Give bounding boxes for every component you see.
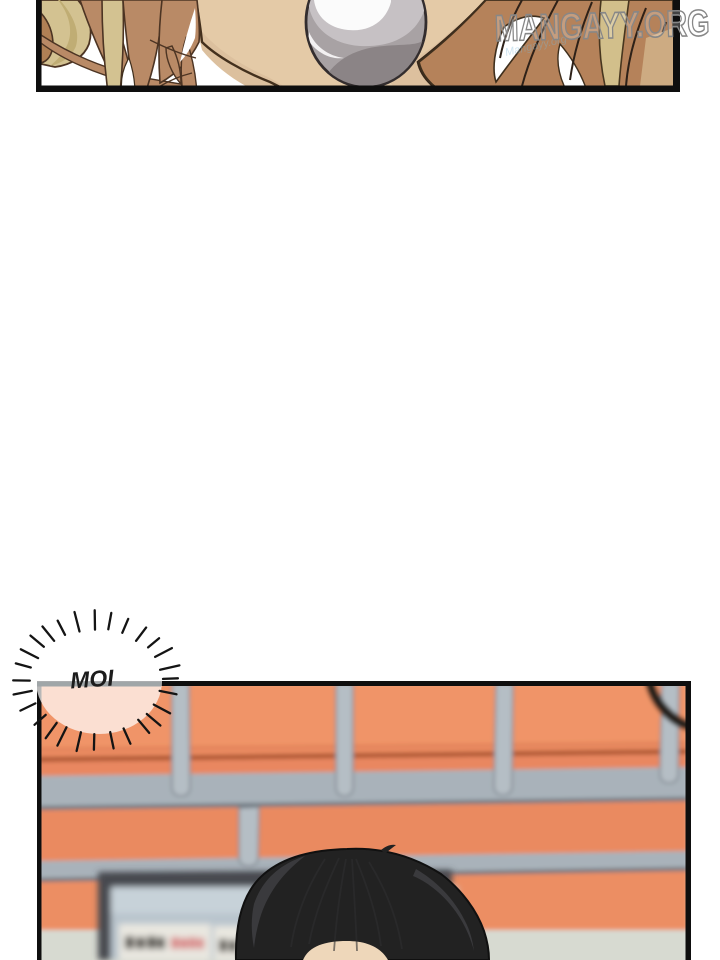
svg-text:MANGAYY.ORG: MANGAYY.ORG [494,2,710,49]
svg-text:MOI: MOI [69,664,115,693]
